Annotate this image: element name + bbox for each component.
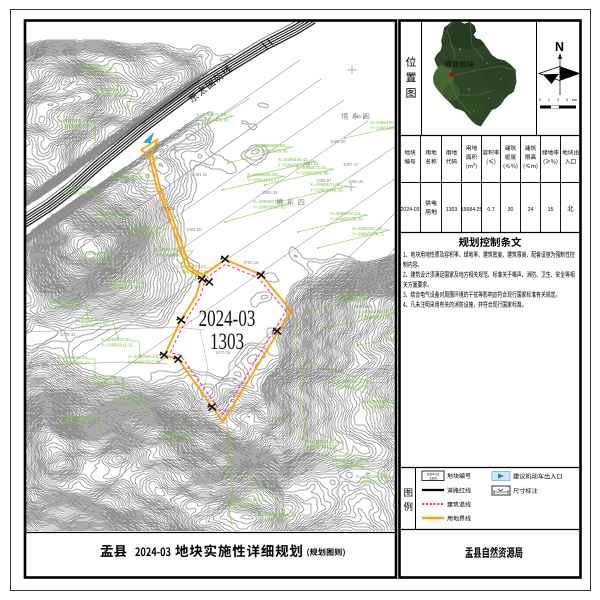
svg-text:Y=19663646.10: Y=19663646.10 [310,188,343,193]
svg-text:Y=19663529.05: Y=19663529.05 [255,149,288,154]
svg-text:1: 1 [548,98,550,102]
svg-text:Y=19663733.45: Y=19663733.45 [95,217,128,222]
svg-text:Y=19663362.08: Y=19663362.08 [128,360,161,365]
svg-text:2024-03: 2024-03 [400,207,419,213]
svg-text:X=4086806.16: X=4086806.16 [158,432,188,437]
svg-text:2024-03: 2024-03 [199,307,256,332]
svg-text:X=4086365.31: X=4086365.31 [95,87,125,92]
svg-text:1087.24: 1087.24 [303,161,319,166]
svg-text:15684.25: 15684.25 [461,207,483,213]
svg-text:15: 15 [548,207,554,213]
svg-text:Y=19663733.30: Y=19663733.30 [330,217,363,222]
svg-text:1086.10: 1086.10 [95,156,111,161]
svg-text:1081.50: 1081.50 [186,227,202,232]
svg-text:Y=19663425.46: Y=19663425.46 [86,381,119,386]
svg-text:km: km [572,98,577,102]
svg-text:N: N [555,40,564,54]
svg-text:X=4086302.75: X=4086302.75 [86,375,116,380]
svg-text:X=4086491.35: X=4086491.35 [113,395,143,400]
svg-text:Y=19663722.16: Y=19663722.16 [356,480,389,485]
svg-text:Y=19663251.25: Y=19663251.25 [75,323,108,328]
svg-text:X=4086406.17: X=4086406.17 [358,309,388,314]
svg-text:1088.30: 1088.30 [120,179,136,184]
svg-text:30: 30 [508,207,514,213]
svg-text:X=4086392.62: X=4086392.62 [356,474,386,479]
svg-text:1098.15: 1098.15 [230,436,246,441]
svg-text:X=4086871.87: X=4086871.87 [253,199,283,204]
svg-text:X=4086636.87: X=4086636.87 [48,299,78,304]
svg-text:1088.50: 1088.50 [330,139,346,144]
svg-text:X=4086477.10: X=4086477.10 [111,170,141,175]
svg-text:Y=19663617.55: Y=19663617.55 [305,445,338,450]
svg-text:X=4086852.27: X=4086852.27 [336,379,366,384]
svg-text:X=4086364.38: X=4086364.38 [352,226,382,231]
svg-text:Y=19663292.58: Y=19663292.58 [78,70,111,75]
svg-text:Y=19663454.38: Y=19663454.38 [58,124,91,129]
svg-text:1088.97: 1088.97 [316,178,332,183]
svg-text:Y=19663485.43: Y=19663485.43 [113,401,146,406]
svg-text:1303: 1303 [446,207,458,213]
svg-text:1303: 1303 [210,330,244,355]
svg-text:X=4086885.59: X=4086885.59 [255,143,285,148]
svg-text:Y=19663197.28: Y=19663197.28 [48,305,81,310]
svg-text:X=4086306.56: X=4086306.56 [258,512,288,517]
svg-text:X=4086706.34: X=4086706.34 [58,118,88,123]
svg-text:1088.05: 1088.05 [188,53,204,58]
svg-text:Y=19663437.96: Y=19663437.96 [336,385,369,390]
svg-text:X=4086635.07: X=4086635.07 [305,439,335,444]
svg-text:X=4086846.32: X=4086846.32 [78,64,108,69]
svg-text:Y=19663137.88: Y=19663137.88 [108,285,141,290]
svg-text:1075.91: 1075.91 [30,377,46,382]
svg-text:X=4086720.95: X=4086720.95 [60,415,90,420]
svg-text:Y=19663775.08: Y=19663775.08 [128,231,161,236]
svg-text:X=4086596.02: X=4086596.02 [128,354,158,359]
svg-text:Y=19663596.38: Y=19663596.38 [158,438,191,443]
svg-text:X=4086699.15: X=4086699.15 [57,355,87,360]
svg-text:Y=19663655.82: Y=19663655.82 [62,191,95,196]
svg-text:Y=19663674.52: Y=19663674.52 [332,464,365,469]
svg-text:X=4086810.43: X=4086810.43 [330,211,360,216]
svg-text:X=4086456.27: X=4086456.27 [108,279,138,284]
svg-text:X=4086829.36: X=4086829.36 [247,172,277,177]
svg-text:X=4086407.81: X=4086407.81 [101,337,131,342]
svg-text:X=4086824.54: X=4086824.54 [332,458,362,463]
svg-text:24: 24 [528,207,534,213]
svg-text:3: 3 [566,98,568,102]
svg-text:1051.39: 1051.39 [221,377,237,382]
svg-text:X=4086696.61: X=4086696.61 [228,497,258,502]
svg-text:Y=19663497.82: Y=19663497.82 [362,405,395,410]
svg-text:1087.47: 1087.47 [343,162,359,167]
svg-text:Y=19663311.11: Y=19663311.11 [101,343,133,348]
svg-text:X=4086472.56: X=4086472.56 [196,112,226,117]
svg-text:Y=19663227.38: Y=19663227.38 [358,315,391,320]
svg-text:1086.35: 1086.35 [348,179,364,184]
svg-text:Y=19663365.27: Y=19663365.27 [57,361,90,366]
svg-text:X=4086434.87: X=4086434.87 [362,399,392,404]
svg-text:Y=19663616.17: Y=19663616.17 [247,178,280,183]
svg-text:X=4086734.05: X=4086734.05 [62,185,92,190]
svg-text:Y=19663853.02: Y=19663853.02 [82,257,115,262]
svg-text:1303: 1303 [429,476,437,480]
svg-text:2: 2 [557,98,559,102]
svg-text:X=4086596.25: X=4086596.25 [128,225,158,230]
svg-text:Y=19663778.72: Y=19663778.72 [352,232,385,237]
svg-text:Y=19663436.56: Y=19663436.56 [196,118,229,123]
svg-text:Y=19663836.38: Y=19663836.38 [258,518,291,523]
svg-text:1078.12: 1078.12 [130,312,146,317]
svg-text:Y=19663595.56: Y=19663595.56 [296,171,329,176]
svg-text:Y=19663545.60: Y=19663545.60 [60,421,93,426]
svg-text:Y=19663176.85: Y=19663176.85 [335,298,368,303]
svg-text:X=4086365.43: X=4086365.43 [95,211,125,216]
svg-text:X=4086825.21: X=4086825.21 [75,317,105,322]
svg-text:1083.34: 1083.34 [262,190,278,195]
svg-text:1702.16: 1702.16 [243,260,259,265]
svg-text:1085.18: 1085.18 [160,206,176,211]
svg-text:1134.21: 1134.21 [328,368,344,373]
svg-text:Y=19663791.08: Y=19663791.08 [228,503,261,508]
svg-text:1085.28: 1085.28 [355,304,371,309]
svg-text:Y=19663361.45: Y=19663361.45 [95,93,128,98]
svg-text:1079.44: 1079.44 [60,332,76,337]
svg-text:0: 0 [539,98,541,102]
svg-text:1081.04: 1081.04 [192,172,208,177]
svg-text:X=4086845.96: X=4086845.96 [335,292,365,297]
svg-text:0.7: 0.7 [487,207,494,213]
svg-text:Y=19663697.83: Y=19663697.83 [253,205,286,210]
svg-text:X=4086874.63: X=4086874.63 [82,251,112,256]
svg-text:1138.50: 1138.50 [305,452,321,457]
